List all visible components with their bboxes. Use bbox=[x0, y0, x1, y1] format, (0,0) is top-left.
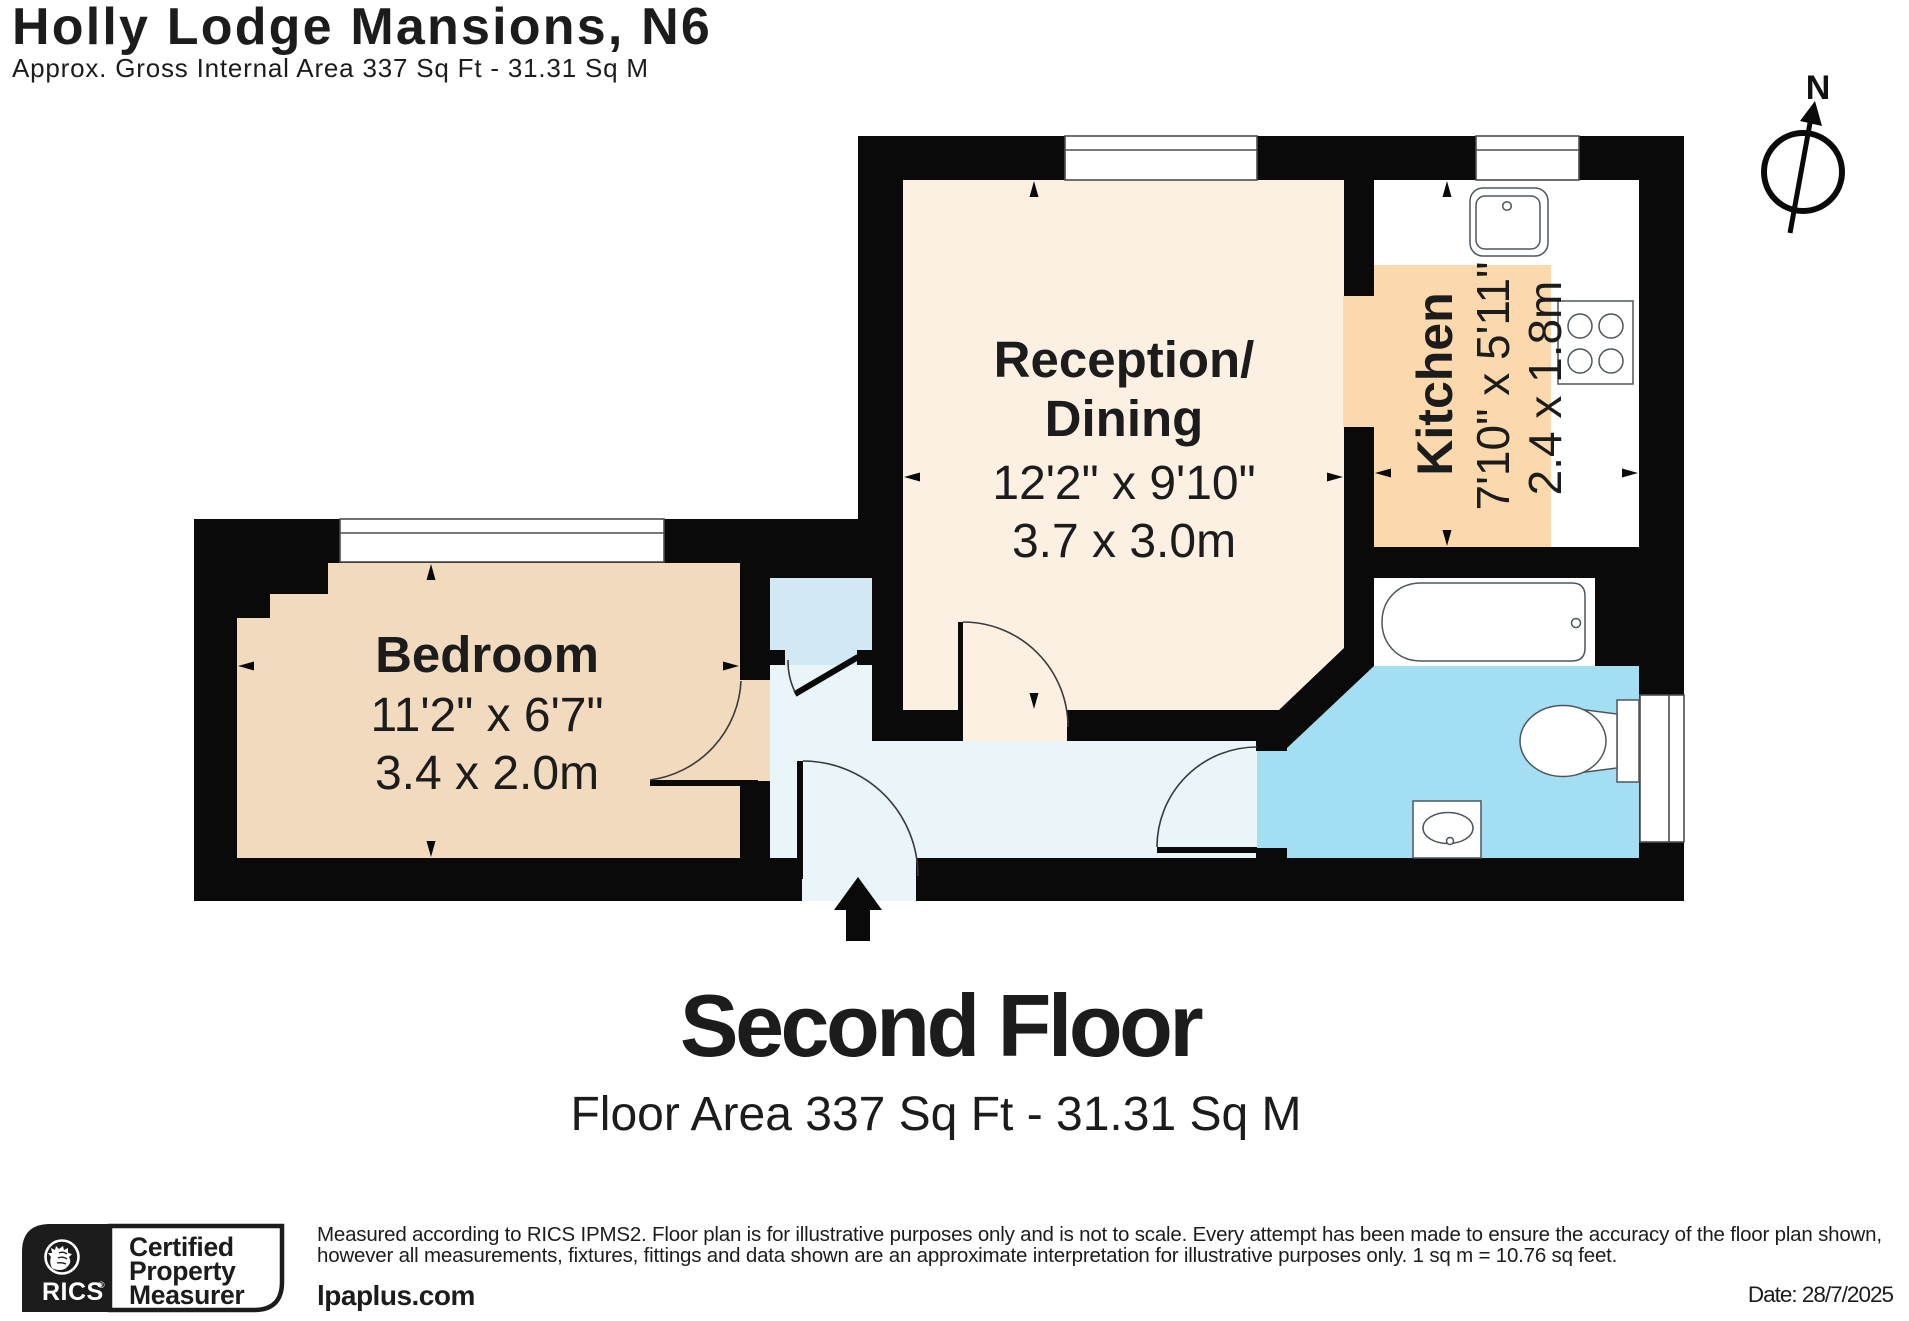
svg-text:Reception/: Reception/ bbox=[994, 331, 1255, 388]
svg-text:Floor Area 337 Sq Ft - 31.31 S: Floor Area 337 Sq Ft - 31.31 Sq M bbox=[570, 1088, 1301, 1141]
svg-text:Holly Lodge Mansions, N6: Holly Lodge Mansions, N6 bbox=[12, 0, 712, 56]
svg-text:Measurer: Measurer bbox=[129, 1280, 244, 1310]
svg-text:3.4 x 2.0m: 3.4 x 2.0m bbox=[375, 747, 599, 800]
svg-text:lpaplus.com: lpaplus.com bbox=[317, 1280, 475, 1311]
svg-text:RICS: RICS bbox=[42, 1278, 104, 1306]
svg-text:Kitchen: Kitchen bbox=[1407, 292, 1463, 475]
svg-text:however all measurements, fixt: however all measurements, fixtures, fitt… bbox=[317, 1244, 1617, 1267]
svg-text:Second Floor: Second Floor bbox=[680, 976, 1203, 1075]
svg-text:Bedroom: Bedroom bbox=[375, 626, 599, 683]
svg-text:11'2" x 6'7": 11'2" x 6'7" bbox=[371, 689, 604, 742]
svg-text:12'2" x 9'10": 12'2" x 9'10" bbox=[992, 457, 1255, 510]
svg-text:Measured according to RICS IPM: Measured according to RICS IPMS2. Floor … bbox=[317, 1223, 1882, 1246]
svg-text:Approx. Gross Internal Area 33: Approx. Gross Internal Area 337 Sq Ft - … bbox=[12, 53, 649, 83]
svg-text:®: ® bbox=[98, 1280, 105, 1290]
svg-text:N: N bbox=[1806, 69, 1831, 107]
svg-text:2.4 x 1.8m: 2.4 x 1.8m bbox=[1519, 281, 1571, 496]
svg-text:Date: 28/7/2025: Date: 28/7/2025 bbox=[1748, 1282, 1894, 1307]
svg-text:7'10" x 5'11": 7'10" x 5'11" bbox=[1467, 262, 1519, 511]
svg-text:3.7 x 3.0m: 3.7 x 3.0m bbox=[1012, 515, 1236, 568]
svg-text:Dining: Dining bbox=[1045, 390, 1204, 447]
